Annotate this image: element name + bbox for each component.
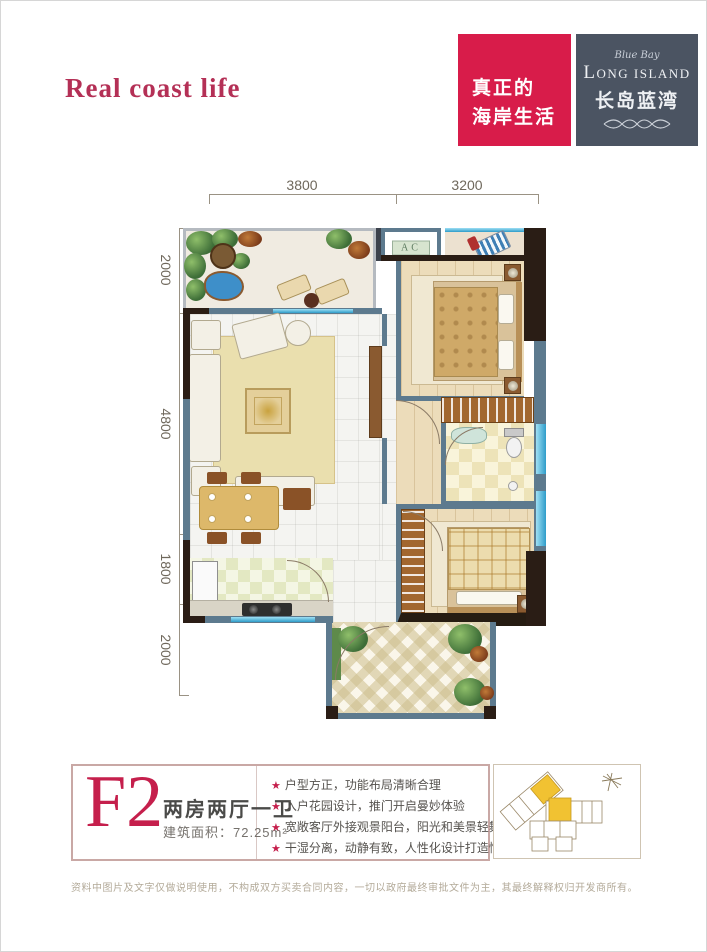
- garden-table: [304, 293, 319, 308]
- shrub-icon: [480, 686, 494, 700]
- dim-label-3800: 3800: [286, 177, 317, 193]
- compass-icon: [602, 773, 622, 791]
- feature-item: ★宽敞客厅外接观景阳台，阳光和美景轻舞跃动: [271, 817, 481, 838]
- window: [536, 491, 546, 546]
- dim-label-1800: 1800: [158, 553, 174, 584]
- duvet: [434, 287, 498, 377]
- master-bedroom: [396, 261, 524, 401]
- entry-garden: [183, 228, 376, 314]
- tagline: Real coast life: [65, 73, 240, 104]
- star-icon: ★: [271, 843, 281, 855]
- site-plan-graphic: [494, 765, 638, 856]
- sofa: [189, 354, 221, 462]
- poster-page: Real coast life 真正的 海岸生活 Blue Bay LONG I…: [0, 0, 707, 952]
- plate-icon: [244, 493, 252, 501]
- wall: [326, 706, 338, 719]
- master-bed: [433, 281, 521, 381]
- lamp-icon: [508, 268, 518, 278]
- toilet: [504, 428, 524, 437]
- feature-item: ★户型方正，功能布局清晰合理: [271, 775, 481, 796]
- nightstand: [504, 377, 521, 394]
- dining-chair: [207, 532, 227, 544]
- logo-english: LONG ISLAND: [576, 62, 698, 84]
- dim-tick: [396, 195, 397, 204]
- logo-script: Blue Bay: [576, 50, 698, 61]
- lounge-chair: [314, 278, 350, 306]
- unit-info-box: F2 两房两厅一卫 建筑面积：72.25m² ★户型方正，功能布局清晰合理 ★入…: [71, 764, 490, 861]
- star-icon: ★: [271, 822, 281, 834]
- plant-icon: [186, 279, 206, 301]
- plant-icon: [184, 253, 206, 279]
- feature-list: ★户型方正，功能布局清晰合理 ★入户花园设计，推门开启曼妙体验 ★宽敞客厅外接观…: [271, 775, 481, 859]
- floor-plan: AC: [183, 228, 546, 719]
- shrub-icon: [470, 646, 488, 662]
- feature-item: ★入户花园设计，推门开启曼妙体验: [271, 796, 481, 817]
- pillow: [498, 340, 514, 370]
- wall: [183, 616, 205, 623]
- refrigerator: [192, 561, 218, 601]
- unit-area: 建筑面积：72.25m²: [163, 822, 288, 841]
- dim-tick: [538, 195, 539, 204]
- dining-chair: [241, 532, 261, 544]
- slogan-box: 真正的 海岸生活: [458, 34, 571, 146]
- dining-chair: [241, 472, 261, 484]
- toilet-bowl: [506, 437, 522, 458]
- wall: [183, 540, 190, 618]
- window: [273, 309, 353, 313]
- feature-text: 入户花园设计，推门开启曼妙体验: [285, 799, 465, 813]
- table-decor: [254, 397, 282, 425]
- ac-label: AC: [392, 240, 430, 255]
- plate-icon: [244, 515, 252, 523]
- wall: [526, 551, 546, 626]
- flourish-icon: [600, 116, 674, 132]
- wall: [524, 228, 546, 341]
- wall: [484, 706, 496, 719]
- shrub-icon: [238, 231, 262, 247]
- dimension-line-top: 3800 3200: [209, 194, 539, 205]
- brand-logo: Blue Bay LONG ISLAND 长岛蓝湾: [576, 34, 698, 146]
- headboard: [516, 282, 522, 382]
- sideboard: [283, 488, 311, 510]
- slogan-text: 真正的 海岸生活: [472, 75, 556, 132]
- star-icon: ★: [271, 801, 281, 813]
- wall: [183, 314, 190, 399]
- disclaimer-text: 资料中图片及文字仅做说明使用，不构成双方买卖合同内容，一切以政府最终审批文件为主…: [71, 879, 638, 894]
- dining-table: [199, 486, 279, 530]
- feature-text: 户型方正，功能布局清晰合理: [285, 778, 441, 792]
- stove: [242, 603, 292, 616]
- wall: [382, 314, 387, 346]
- burner-icon: [249, 605, 258, 614]
- feature-item: ★干湿分离，动静有致，人性化设计打造惬意生活: [271, 838, 481, 859]
- feature-text: 宽敞客厅外接观景阳台，阳光和美景轻舞跃动: [285, 820, 525, 834]
- window: [445, 228, 527, 232]
- pillow: [456, 591, 522, 605]
- slogan-line2: 海岸生活: [472, 104, 556, 133]
- duvet: [448, 528, 530, 590]
- pillow: [498, 294, 514, 324]
- star-icon: ★: [271, 780, 281, 792]
- dining-chair: [207, 472, 227, 484]
- pond: [204, 271, 244, 301]
- lamp-icon: [508, 381, 518, 391]
- side-table: [285, 320, 311, 346]
- wall: [382, 438, 387, 504]
- unit-code: F2: [85, 758, 163, 847]
- dim-label-3200: 3200: [451, 177, 482, 193]
- window: [536, 424, 546, 474]
- logo-chinese: 长岛蓝湾: [576, 86, 698, 113]
- balcony-access-floor: [333, 560, 396, 622]
- window: [231, 617, 315, 622]
- dim-label-2000b: 2000: [158, 634, 174, 665]
- armchair: [191, 320, 221, 350]
- tv-cabinet: [369, 346, 382, 438]
- umbrella-deck: [210, 243, 236, 269]
- dim-tick: [209, 195, 210, 204]
- wardrobe: [441, 397, 534, 423]
- coffee-table: [245, 388, 291, 434]
- floor-drain: [508, 481, 518, 491]
- burner-icon: [272, 605, 281, 614]
- site-key-plan: [493, 764, 641, 859]
- plate-icon: [208, 493, 216, 501]
- dim-label-4800: 4800: [158, 408, 174, 439]
- slogan-line1: 真正的: [472, 75, 556, 104]
- shrub-icon: [348, 241, 370, 259]
- nightstand: [504, 264, 521, 281]
- plate-icon: [208, 515, 216, 523]
- dim-label-2000a: 2000: [158, 254, 174, 285]
